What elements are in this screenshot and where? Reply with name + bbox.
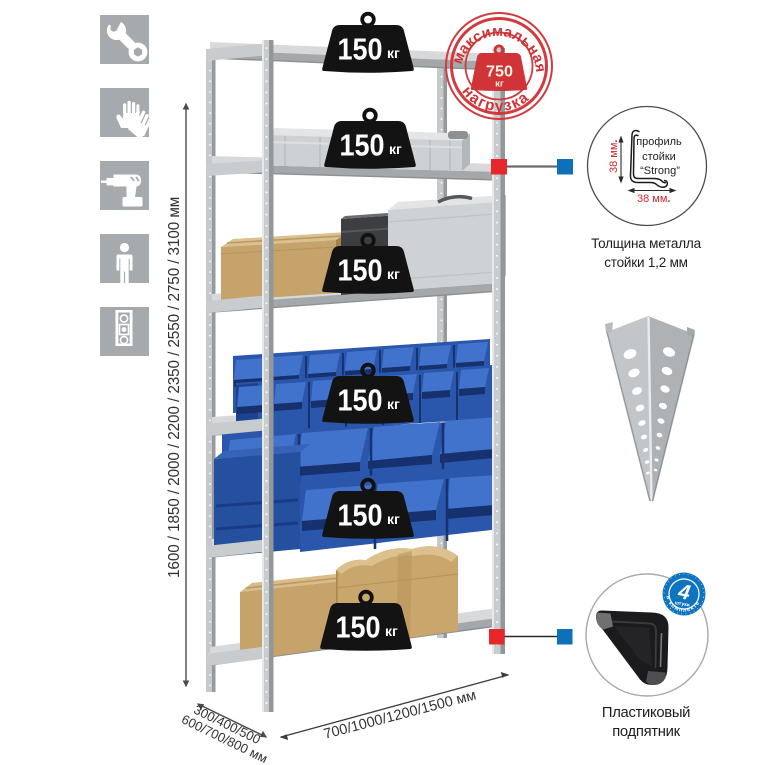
svg-text:150: 150 bbox=[340, 129, 385, 163]
svg-text:700/1000/1200/1500 мм: 700/1000/1200/1500 мм bbox=[322, 687, 478, 742]
svg-text:кг: кг bbox=[385, 623, 398, 639]
svg-text:стойки: стойки bbox=[642, 151, 676, 163]
svg-text:150: 150 bbox=[338, 499, 383, 533]
svg-text:профиль: профиль bbox=[636, 136, 682, 148]
svg-text:кг: кг bbox=[387, 45, 400, 61]
svg-text:1600 / 1850 / 2000 / 2200 / 23: 1600 / 1850 / 2000 / 2200 / 2350 / 2550 … bbox=[166, 197, 183, 578]
svg-text:кг: кг bbox=[387, 266, 400, 282]
svg-text:подпятник: подпятник bbox=[612, 724, 680, 740]
svg-text:кг: кг bbox=[495, 79, 504, 90]
svg-text:“Strong”: “Strong” bbox=[640, 165, 680, 177]
svg-text:150: 150 bbox=[338, 254, 383, 288]
svg-text:150: 150 bbox=[338, 33, 383, 67]
svg-text:38 мм.: 38 мм. bbox=[608, 140, 620, 173]
svg-text:150: 150 bbox=[336, 611, 381, 645]
svg-text:150: 150 bbox=[338, 384, 383, 418]
svg-text:Толщина металла: Толщина металла bbox=[591, 236, 701, 251]
svg-text:кг: кг bbox=[387, 511, 400, 527]
svg-text:кг: кг bbox=[387, 396, 400, 412]
svg-text:стойки 1,2 мм: стойки 1,2 мм bbox=[604, 255, 688, 270]
svg-text:38 мм.: 38 мм. bbox=[637, 193, 670, 205]
svg-text:Пластиковый: Пластиковый bbox=[602, 705, 690, 721]
svg-text:кг: кг bbox=[389, 141, 402, 157]
